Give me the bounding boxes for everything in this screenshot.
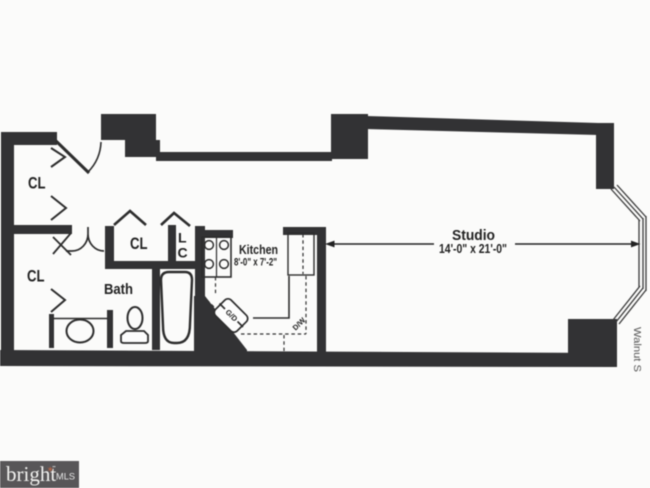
- svg-text:14'-0" x 21'-0": 14'-0" x 21'-0": [439, 241, 507, 256]
- svg-text:MLS: MLS: [56, 472, 75, 483]
- svg-text:L: L: [178, 230, 187, 246]
- svg-text:Walnut S: Walnut S: [631, 327, 642, 372]
- svg-text:C: C: [178, 245, 188, 261]
- svg-text:8'-0" x 7'-2": 8'-0" x 7'-2": [234, 257, 277, 269]
- svg-text:Bath: Bath: [104, 282, 133, 298]
- svg-text:CL: CL: [27, 267, 45, 286]
- svg-text:CL: CL: [130, 234, 148, 253]
- svg-text:Kitchen: Kitchen: [239, 242, 278, 257]
- svg-text:CL: CL: [28, 174, 46, 193]
